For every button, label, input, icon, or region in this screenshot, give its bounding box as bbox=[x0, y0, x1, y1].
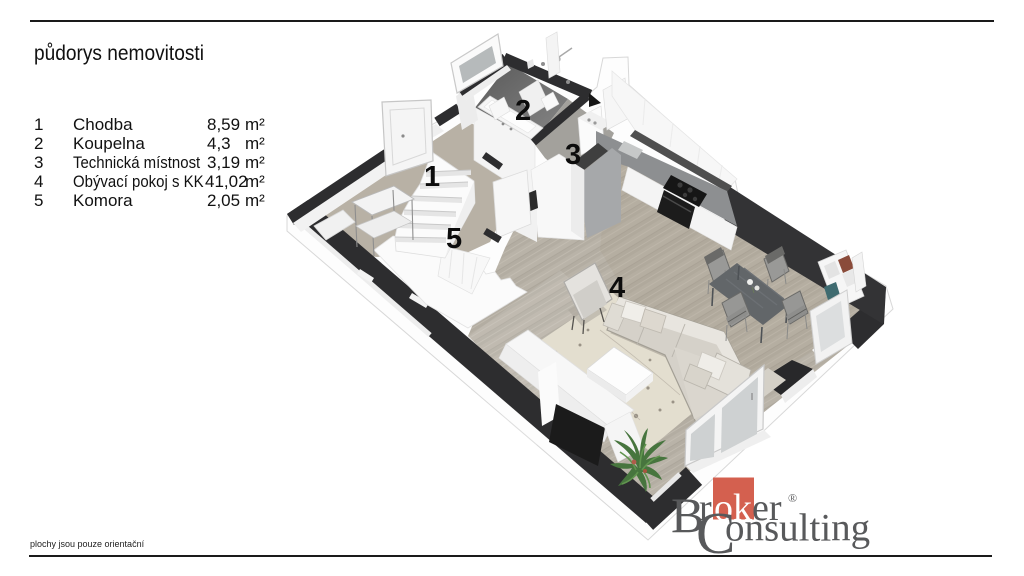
svg-text:®: ® bbox=[788, 491, 797, 505]
svg-text:onsulting: onsulting bbox=[725, 507, 870, 550]
